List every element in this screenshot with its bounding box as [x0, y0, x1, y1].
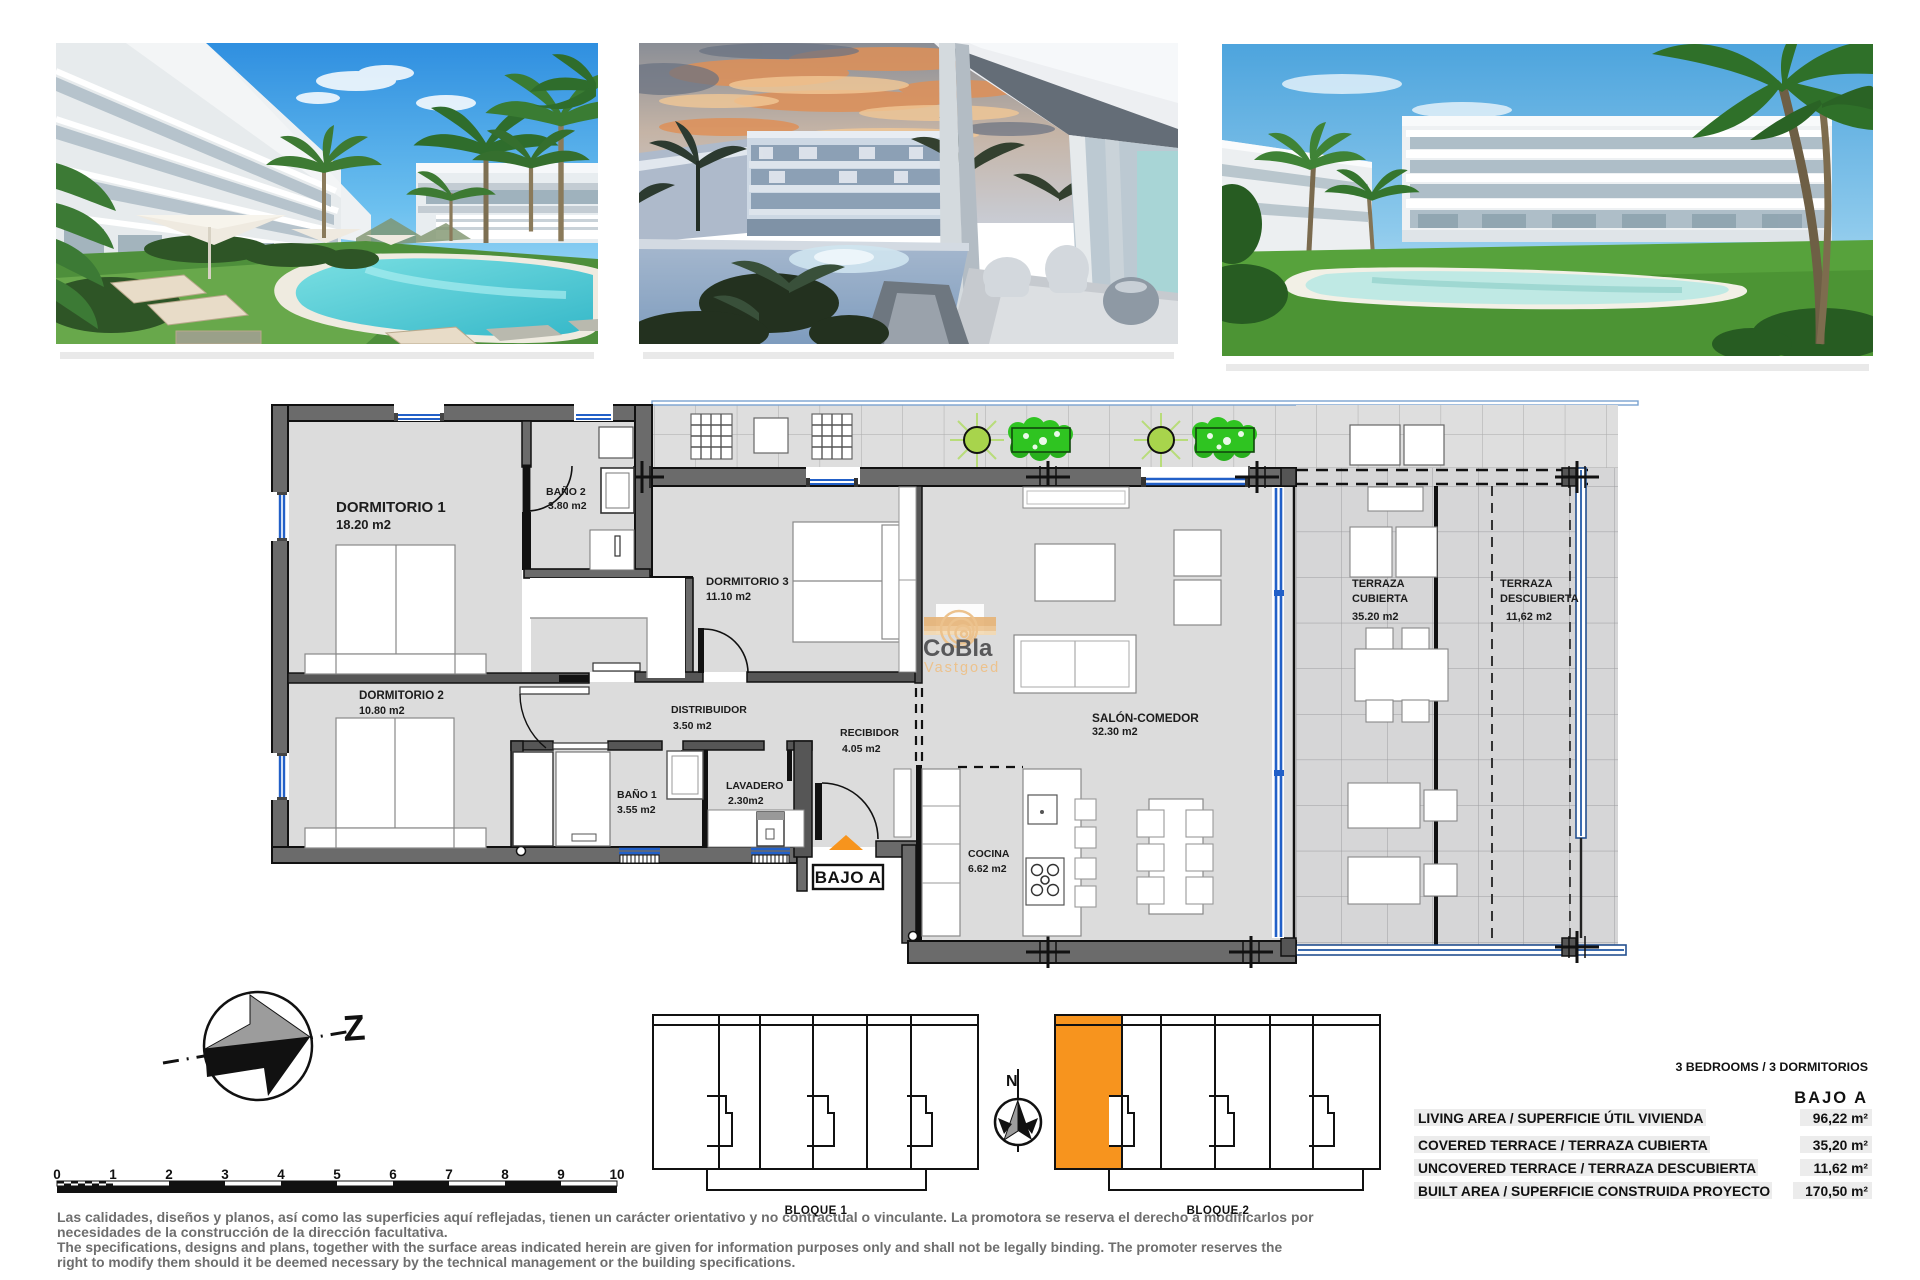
svg-text:3: 3: [221, 1167, 229, 1182]
svg-text:10: 10: [609, 1167, 624, 1182]
svg-text:3.50 m2: 3.50 m2: [673, 720, 712, 732]
svg-text:DORMITORIO 3: DORMITORIO 3: [706, 576, 789, 588]
svg-text:18.20 m2: 18.20 m2: [336, 517, 391, 532]
svg-text:35,20 m²: 35,20 m²: [1813, 1138, 1869, 1153]
svg-text:BLOQUE 1: BLOQUE 1: [785, 1205, 848, 1217]
svg-text:BLOQUE 2: BLOQUE 2: [1187, 1205, 1250, 1217]
svg-text:7: 7: [445, 1167, 453, 1182]
svg-text:LAVADERO: LAVADERO: [726, 780, 783, 792]
svg-text:DORMITORIO 2: DORMITORIO 2: [359, 689, 444, 702]
svg-text:3.80 m2: 3.80 m2: [548, 500, 587, 512]
svg-text:4: 4: [277, 1167, 285, 1182]
svg-text:32.30 m2: 32.30 m2: [1092, 726, 1138, 738]
svg-text:N: N: [1006, 1073, 1018, 1090]
svg-text:6.62 m2: 6.62 m2: [968, 863, 1007, 875]
svg-text:LIVING AREA / SUPERFICIE ÚTIL: LIVING AREA / SUPERFICIE ÚTIL VIVIENDA: [1418, 1109, 1703, 1126]
svg-text:CoBla: CoBla: [923, 635, 993, 662]
svg-text:0: 0: [53, 1167, 61, 1182]
svg-text:BAJO A: BAJO A: [1794, 1089, 1868, 1107]
svg-text:COCINA: COCINA: [968, 848, 1010, 860]
svg-text:DORMITORIO 1: DORMITORIO 1: [336, 499, 446, 516]
svg-text:SALÓN-COMEDOR: SALÓN-COMEDOR: [1092, 711, 1199, 725]
svg-text:Vastgoed: Vastgoed: [924, 660, 1000, 676]
svg-text:COVERED TERRACE / TERRAZA CUBI: COVERED TERRACE / TERRAZA CUBIERTA: [1418, 1138, 1708, 1153]
svg-text:170,50 m²: 170,50 m²: [1805, 1184, 1868, 1199]
svg-text:BAÑO 1: BAÑO 1: [617, 788, 657, 801]
svg-text:3.55 m2: 3.55 m2: [617, 804, 656, 816]
svg-text:TERRAZA: TERRAZA: [1500, 578, 1553, 590]
svg-text:3 BEDROOMS / 3 DORMITORIOS: 3 BEDROOMS / 3 DORMITORIOS: [1675, 1060, 1868, 1074]
svg-text:DESCUBIERTA: DESCUBIERTA: [1500, 593, 1579, 605]
svg-text:35.20 m2: 35.20 m2: [1352, 611, 1398, 623]
svg-text:necesidades de la construcción: necesidades de la construcción de la dir…: [57, 1224, 448, 1240]
svg-text:2: 2: [165, 1167, 173, 1182]
svg-text:8: 8: [501, 1167, 509, 1182]
svg-text:BUILT AREA / SUPERFICIE CONSTR: BUILT AREA / SUPERFICIE CONSTRUIDA PROYE…: [1418, 1184, 1770, 1199]
svg-text:6: 6: [389, 1167, 397, 1182]
svg-text:1: 1: [109, 1167, 117, 1182]
svg-text:4.05 m2: 4.05 m2: [842, 743, 881, 755]
svg-text:9: 9: [557, 1167, 565, 1182]
svg-text:BAJO A: BAJO A: [815, 868, 882, 887]
svg-text:BAÑO 2: BAÑO 2: [546, 485, 586, 498]
svg-text:right to modify them should it: right to modify them should it be deemed…: [57, 1255, 795, 1270]
svg-text:CUBIERTA: CUBIERTA: [1352, 593, 1408, 605]
svg-text:UNCOVERED TERRACE / TERRAZA DE: UNCOVERED TERRACE / TERRAZA DESCUBIERTA: [1418, 1161, 1756, 1176]
svg-text:DISTRIBUIDOR: DISTRIBUIDOR: [671, 704, 747, 716]
svg-text:TERRAZA: TERRAZA: [1352, 578, 1405, 590]
svg-text:Las calidades, diseños y plano: Las calidades, diseños y planos, así com…: [57, 1209, 1314, 1225]
svg-text:11,62 m²: 11,62 m²: [1814, 1161, 1869, 1176]
svg-text:Z: Z: [342, 1007, 367, 1049]
svg-text:2.30m2: 2.30m2: [728, 795, 764, 807]
svg-text:5: 5: [333, 1167, 341, 1182]
svg-text:11.10 m2: 11.10 m2: [706, 591, 751, 603]
svg-text:10.80 m2: 10.80 m2: [359, 705, 405, 717]
svg-text:RECIBIDOR: RECIBIDOR: [840, 727, 899, 739]
svg-text:96,22 m²: 96,22 m²: [1813, 1111, 1869, 1126]
svg-text:11,62 m2: 11,62 m2: [1506, 611, 1552, 623]
svg-text:The specifications, designs an: The specifications, designs and plans, t…: [57, 1240, 1282, 1255]
